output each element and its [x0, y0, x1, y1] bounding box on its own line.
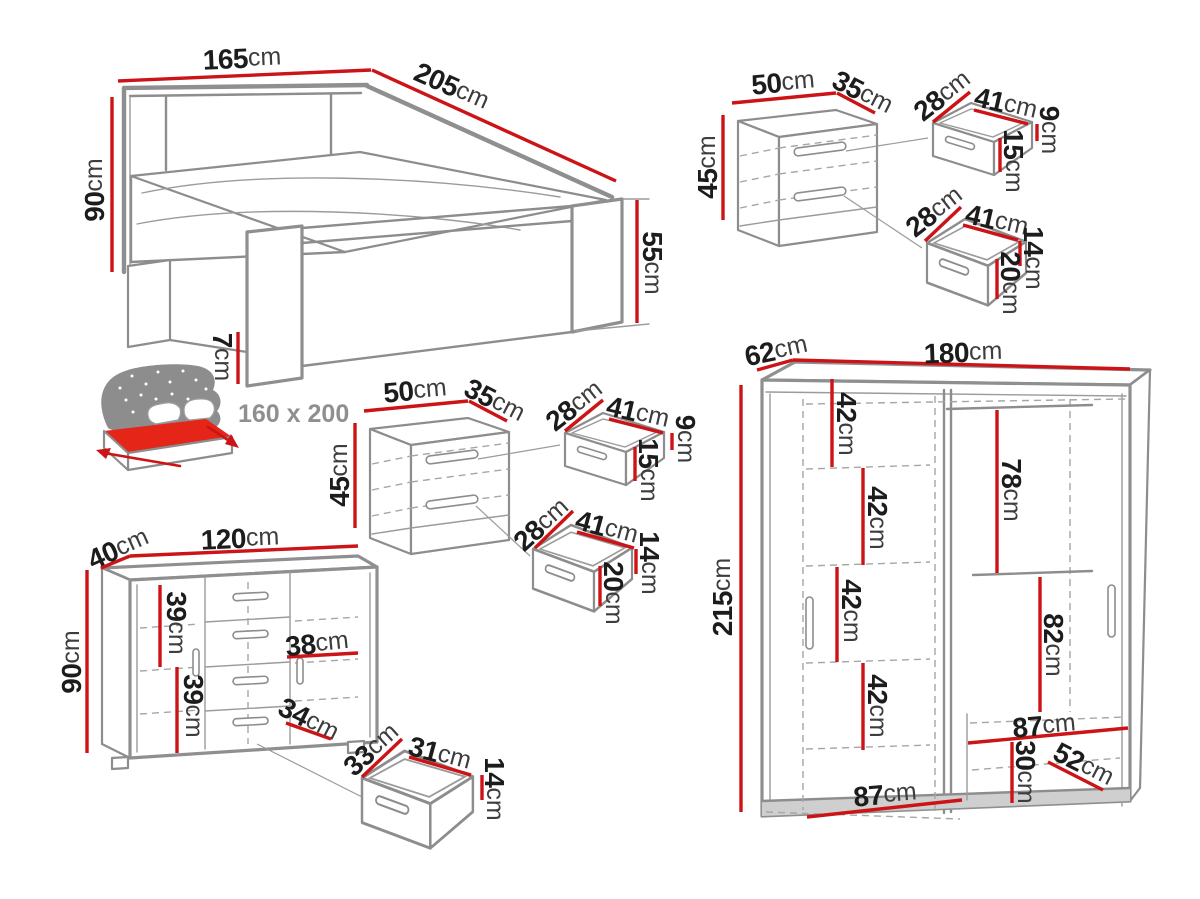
- pillow: [148, 403, 181, 424]
- door-handle: [193, 649, 199, 676]
- wardrobe-height-label: 215cm: [707, 558, 738, 637]
- door-handle: [297, 658, 303, 684]
- furniture-dimensions-diagram: 165cm 205cm 90cm 55cm 7cm 160 x 200: [0, 0, 1200, 899]
- wardrobe-drawing: [762, 362, 1150, 819]
- dresser-side-face: [102, 568, 130, 758]
- footboard-left-leg: [247, 226, 302, 386]
- drawer-front-height-label: 20cm: [996, 251, 1027, 314]
- drawer-front-height-label: 14cm: [480, 757, 511, 820]
- nightstand-b-cabinet: [370, 418, 509, 554]
- drawer-handle: [233, 592, 268, 601]
- dresser-height-label: 90cm: [56, 630, 87, 693]
- lower-inner-height-label: 39cm: [179, 674, 210, 737]
- lower-section-label: 82cm: [1039, 613, 1070, 676]
- drawer-front-height-label: 15cm: [634, 438, 665, 501]
- bed-width-label: 165cm: [202, 41, 282, 75]
- footboard-right-leg: [572, 199, 622, 332]
- bed-footboard-height-label: 55cm: [638, 231, 669, 294]
- shelf-gap-label: 42cm: [863, 674, 894, 737]
- furniture-dimensions-page: 165cm 205cm 90cm 55cm 7cm 160 x 200: [0, 0, 1200, 899]
- drawer-front-height-label: 20cm: [599, 561, 630, 624]
- bed-drawing: [124, 85, 649, 386]
- bed-left-leg: [128, 260, 170, 347]
- drawer-front-height-label: 15cm: [999, 129, 1030, 192]
- pillow: [184, 399, 215, 420]
- door-handle: [1108, 585, 1115, 637]
- drawer-inner-height-label: 9cm: [1035, 106, 1066, 154]
- dresser-width-label: 120cm: [200, 521, 280, 555]
- drawer-inner-height-label: 14cm: [635, 531, 666, 594]
- wardrobe-side-face: [1130, 370, 1150, 801]
- hanging-height-label: 78cm: [997, 458, 1028, 521]
- drawer-handle: [233, 676, 268, 685]
- shelf-gap-label: 42cm: [863, 486, 894, 549]
- mattress-size-note: 160 x 200: [238, 400, 349, 428]
- nightstand-a-cabinet: [738, 110, 877, 246]
- drawer-height-label: 30cm: [1011, 740, 1042, 803]
- dresser-foot: [112, 757, 128, 769]
- door-handle: [806, 597, 813, 649]
- upper-inner-height-label: 39cm: [162, 591, 193, 654]
- headboard-inner-line: [130, 93, 361, 96]
- drawer-handle: [233, 630, 268, 639]
- wardrobe-width-label: 180cm: [923, 335, 1003, 369]
- nightstand-height-label: 45cm: [324, 443, 355, 506]
- drawer-handle: [233, 717, 268, 726]
- bed-height-label: 90cm: [79, 158, 110, 221]
- headboard-top-edge: [124, 85, 367, 88]
- nightstand-height-label: 45cm: [692, 135, 723, 198]
- shelf-gap-label: 42cm: [837, 579, 868, 642]
- shelf-gap-label: 42cm: [832, 392, 863, 455]
- drawer-inner-height-label: 9cm: [671, 415, 702, 463]
- bed-bottom-edge: [302, 332, 572, 366]
